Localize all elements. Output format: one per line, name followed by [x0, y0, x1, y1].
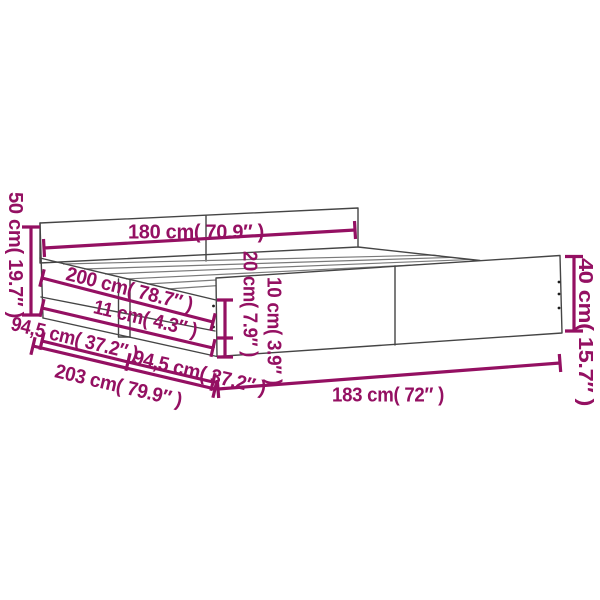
dimension-label-180cm: 180 cm( 70.9″ ) — [128, 222, 264, 244]
bed-frame-diagram-svg: 50 cm( 19.7″ ) 180 cm( 70.9″ ) 200 cm( 7… — [0, 0, 600, 600]
dimension-label-10cm: 10 cm( 3.9″ ) — [263, 277, 285, 385]
dimension-50cm: 50 cm( 19.7″ ) — [4, 192, 40, 318]
dimension-label-40cm: 40 cm( 15.7″ ) — [574, 258, 596, 406]
dimension-40cm: 40 cm( 15.7″ ) — [565, 257, 596, 407]
dimension-label-183cm: 183 cm( 72″ ) — [332, 385, 444, 407]
product-dimension-diagram: 50 cm( 19.7″ ) 180 cm( 70.9″ ) 200 cm( 7… — [0, 0, 600, 600]
dimension-label-50cm: 50 cm( 19.7″ ) — [4, 192, 26, 318]
dimension-label-20cm: 20 cm( 7.9″ ) — [239, 251, 261, 357]
